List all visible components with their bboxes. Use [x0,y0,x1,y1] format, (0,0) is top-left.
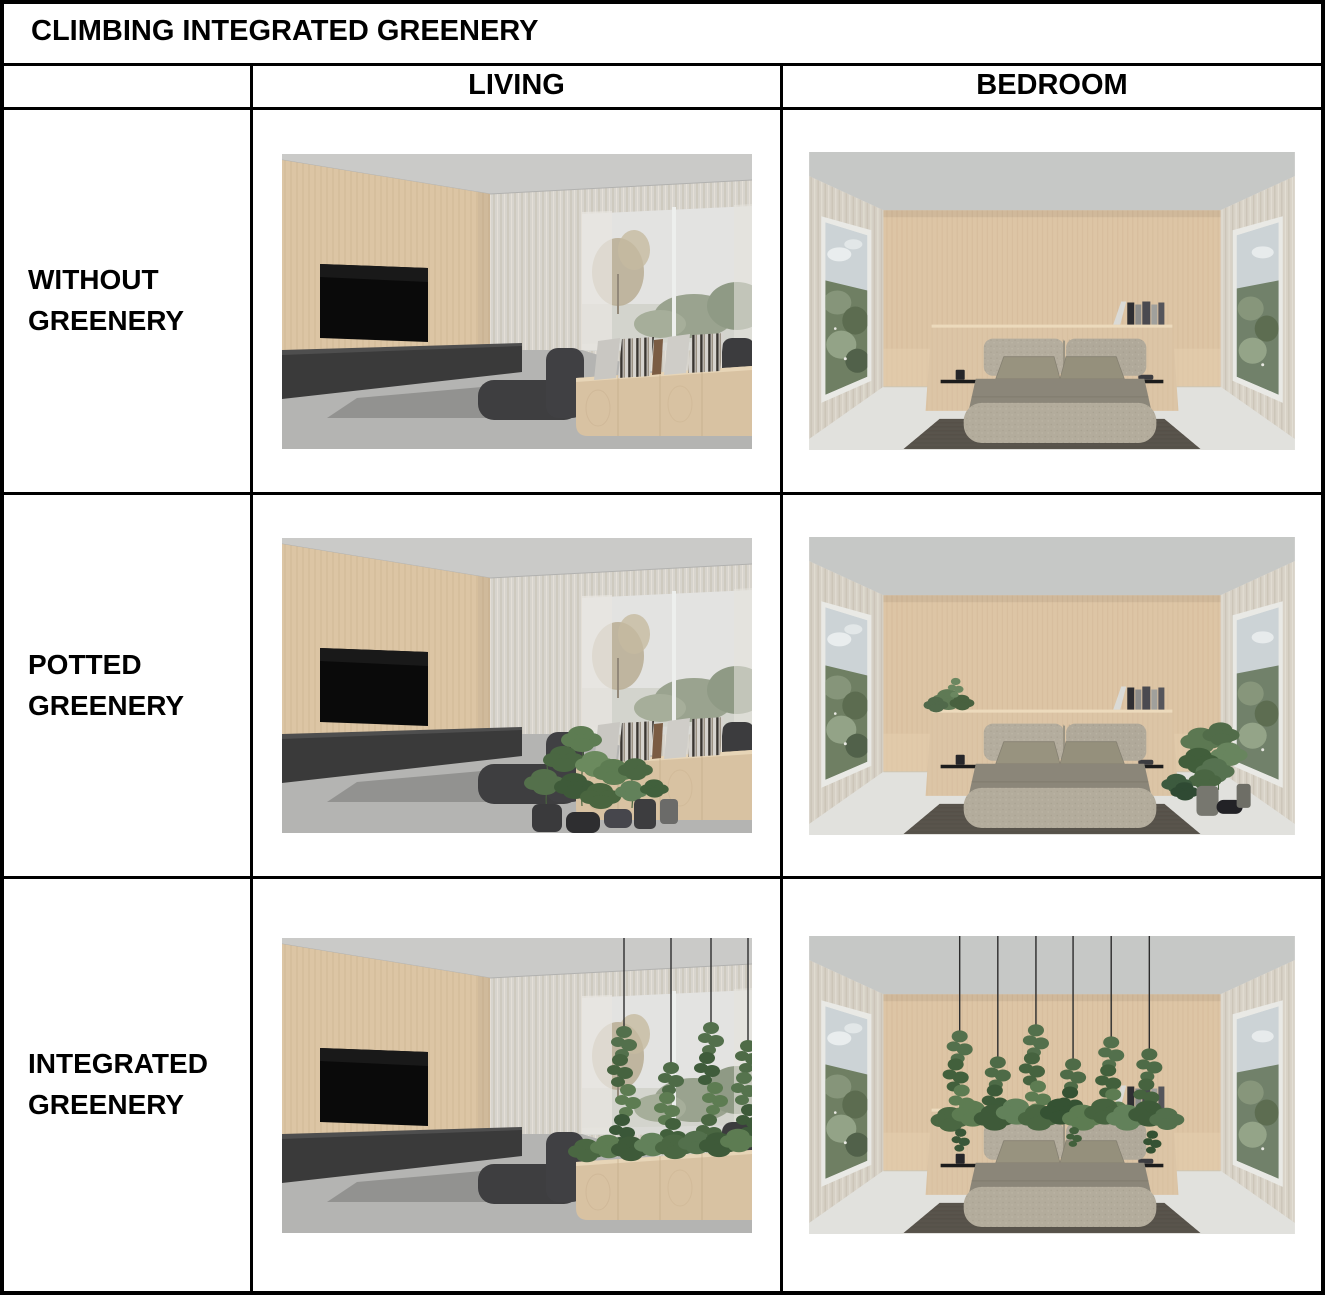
row-header-integrated-greenery: INTEGRATED GREENERY [4,879,253,1291]
cell-without-bedroom [783,110,1321,495]
cell-integrated-bedroom [783,879,1321,1291]
bedroom-render-integrated-hanging-greenery [809,936,1295,1234]
comparison-figure: CLIMBING INTEGRATED GREENERY LIVING BEDR… [0,0,1325,1295]
cell-integrated-living [253,879,783,1291]
column-header-bedroom: BEDROOM [783,66,1321,110]
bedroom-render-without-greenery [809,152,1295,450]
cell-without-living [253,110,783,495]
row-header-without-greenery: WITHOUT GREENERY [4,110,253,495]
bedroom-render-potted-plants [809,537,1295,835]
row-header-potted-greenery: POTTED GREENERY [4,495,253,879]
cell-potted-living [253,495,783,879]
cell-potted-bedroom [783,495,1321,879]
column-header-living: LIVING [253,66,783,110]
living-room-render-potted-plants [282,538,752,833]
corner-header-cell [4,66,253,110]
living-room-render-without-greenery [282,154,752,449]
figure-title: CLIMBING INTEGRATED GREENERY [4,4,1321,66]
living-room-render-integrated-climbing-greenery [282,938,752,1233]
